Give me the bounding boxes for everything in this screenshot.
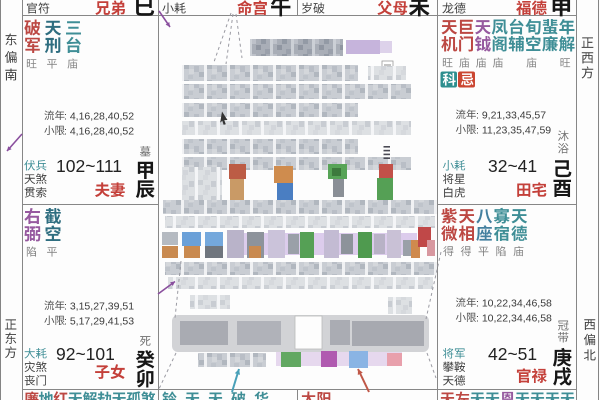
svg-text:: 5,17,29,41,53: : 5,17,29,41,53 [64, 316, 134, 328]
svg-text:: 11,23,35,47,59: : 11,23,35,47,59 [476, 125, 551, 137]
svg-text:: 10,22,34,46,58: : 10,22,34,46,58 [476, 313, 552, 325]
svg-text:: 9,21,33,45,57: : 9,21,33,45,57 [476, 110, 546, 122]
svg-text:: 4,16,28,40,52: : 4,16,28,40,52 [64, 126, 134, 138]
svg-text:42~51: 42~51 [488, 344, 537, 364]
svg-text:: 4,16,28,40,52: : 4,16,28,40,52 [64, 111, 134, 123]
svg-text:: 3,15,27,39,51: : 3,15,27,39,51 [64, 301, 134, 313]
svg-text:102~111: 102~111 [56, 156, 122, 176]
svg-text:92~101: 92~101 [56, 344, 115, 364]
svg-text:32~41: 32~41 [488, 156, 537, 176]
svg-text:: 10,22,34,46,58: : 10,22,34,46,58 [476, 298, 552, 310]
